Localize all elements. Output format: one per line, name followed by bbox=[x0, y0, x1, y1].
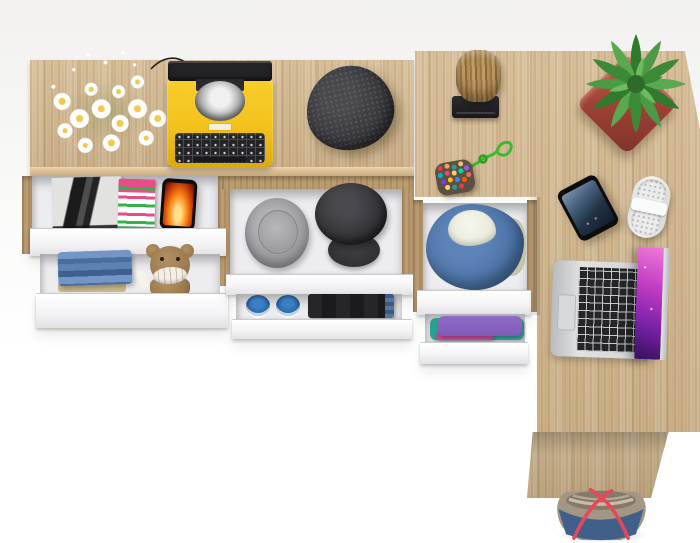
sneaker-left bbox=[246, 295, 270, 316]
teddy-bear bbox=[134, 244, 202, 300]
typewriter-platen bbox=[168, 61, 272, 81]
laptop-screen bbox=[634, 247, 664, 360]
wood-stump bbox=[456, 50, 501, 102]
laptop bbox=[550, 242, 672, 364]
drawer-shoes-front bbox=[232, 319, 412, 339]
shirt-purple bbox=[438, 316, 522, 336]
laptop-trackpad bbox=[557, 294, 576, 331]
typewriter-label bbox=[209, 124, 231, 130]
drawer-shirts-front bbox=[420, 342, 528, 364]
magazine-bw bbox=[51, 176, 122, 231]
scene bbox=[0, 0, 700, 543]
bucket-hat-crown bbox=[258, 210, 298, 254]
hoodie-fleece-lining bbox=[448, 210, 496, 246]
black-jeans bbox=[308, 294, 394, 318]
desk-edge-shadow bbox=[528, 197, 540, 315]
bucket-hat bbox=[245, 198, 309, 268]
succulent-plant bbox=[583, 26, 689, 132]
typewriter-type-basket bbox=[195, 81, 245, 121]
sneaker-right bbox=[276, 295, 300, 316]
magazine-color bbox=[117, 179, 155, 231]
typewriter bbox=[166, 55, 274, 169]
black-cap bbox=[315, 183, 387, 269]
teddy-eye-left bbox=[160, 257, 164, 261]
jeans-stack bbox=[57, 250, 132, 287]
phone-flame-screen bbox=[163, 182, 195, 227]
teddy-eye-right bbox=[176, 257, 180, 261]
tote-bag bbox=[552, 478, 650, 543]
black-cap-crown bbox=[315, 183, 387, 245]
laptop-keyboard bbox=[576, 267, 641, 353]
drawer-jeans-front bbox=[36, 293, 228, 328]
drawer-hoodie-front bbox=[417, 290, 531, 315]
teddy-bone bbox=[135, 269, 149, 290]
drawer-caps-front bbox=[226, 274, 414, 295]
phone-flame bbox=[159, 178, 197, 231]
typewriter-spacebar bbox=[193, 157, 247, 162]
